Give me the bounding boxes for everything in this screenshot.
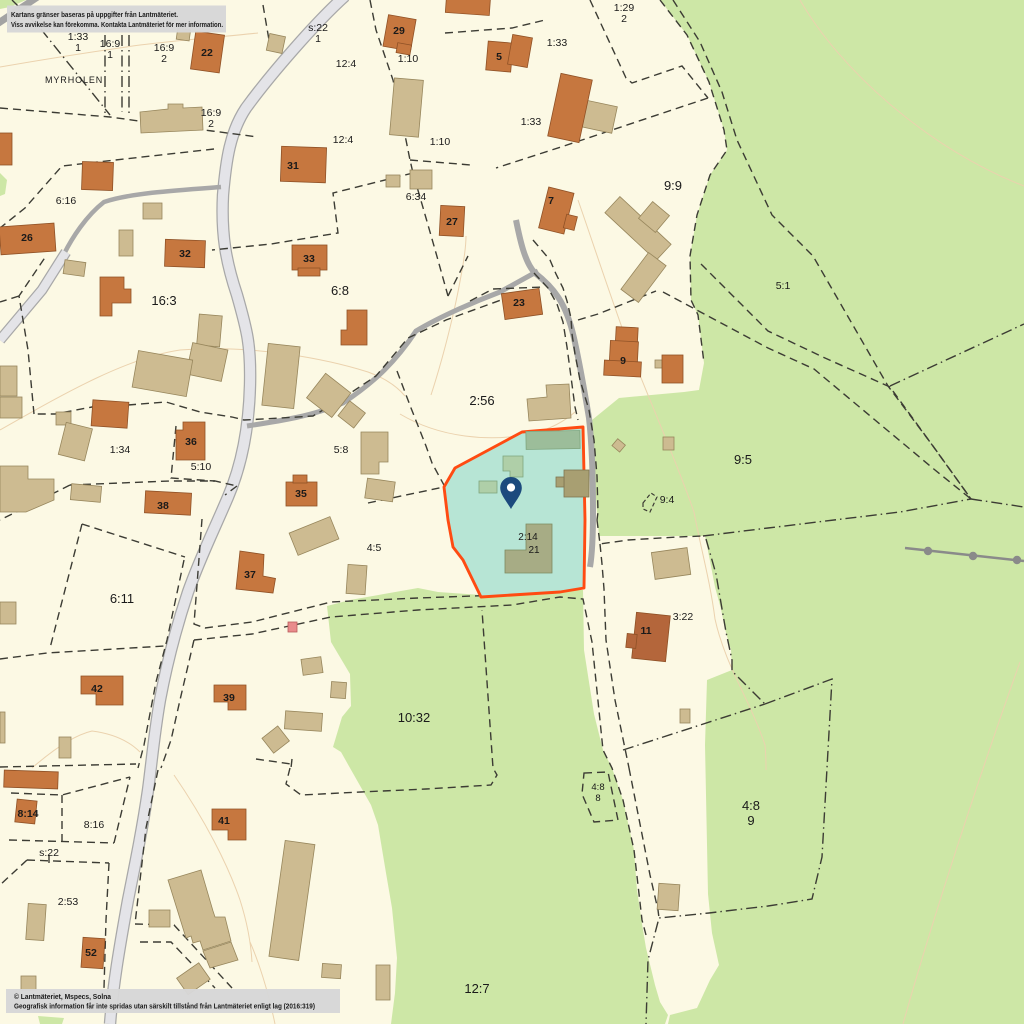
svg-text:12:4: 12:4	[336, 58, 357, 70]
svg-text:2:56: 2:56	[469, 393, 494, 408]
svg-text:5:1: 5:1	[776, 280, 791, 292]
svg-text:9:5: 9:5	[734, 452, 752, 467]
svg-text:36: 36	[185, 436, 197, 448]
svg-text:MYRHOLEN: MYRHOLEN	[45, 75, 103, 85]
svg-text:22: 22	[201, 47, 213, 59]
svg-text:6:34: 6:34	[406, 191, 427, 203]
svg-text:1:34: 1:34	[110, 444, 131, 456]
svg-text:1:33: 1:33	[547, 37, 568, 49]
svg-text:9: 9	[620, 355, 626, 367]
svg-text:2: 2	[161, 53, 167, 65]
svg-text:38: 38	[157, 500, 169, 512]
svg-text:16:3: 16:3	[151, 293, 176, 308]
svg-text:1: 1	[107, 49, 113, 61]
svg-text:Viss avvikelse kan förekomma.: Viss avvikelse kan förekomma. Kontakta L…	[11, 20, 223, 29]
svg-text:Geografisk information får int: Geografisk information får inte spridas …	[14, 1002, 316, 1011]
svg-text:6:16: 6:16	[56, 195, 77, 207]
svg-text:52: 52	[85, 947, 97, 959]
svg-text:12:7: 12:7	[464, 981, 489, 996]
svg-text:10:32: 10:32	[398, 710, 431, 725]
svg-text:1:10: 1:10	[398, 53, 419, 65]
svg-text:39: 39	[223, 692, 235, 704]
svg-text:8:16: 8:16	[84, 819, 105, 831]
svg-text:11: 11	[640, 625, 651, 637]
svg-text:2: 2	[208, 118, 214, 130]
svg-text:8: 8	[595, 793, 600, 804]
svg-text:7: 7	[548, 195, 554, 207]
svg-text:2: 2	[621, 13, 627, 25]
svg-text:2:14: 2:14	[518, 532, 538, 543]
svg-text:4:8: 4:8	[591, 782, 604, 793]
svg-text:8:14: 8:14	[17, 808, 38, 820]
svg-text:5:10: 5:10	[191, 461, 212, 473]
svg-text:27: 27	[446, 216, 458, 228]
svg-text:26: 26	[21, 232, 33, 244]
svg-text:Kartans gränser baseras på upp: Kartans gränser baseras på uppgifter frå…	[11, 10, 178, 19]
svg-text:41: 41	[218, 815, 230, 827]
svg-text:4:8: 4:8	[742, 798, 760, 813]
svg-text:1: 1	[315, 33, 321, 45]
svg-text:33: 33	[303, 253, 315, 265]
svg-text:1:10: 1:10	[430, 136, 451, 148]
svg-text:6:11: 6:11	[110, 591, 134, 606]
svg-text:31: 31	[287, 160, 299, 172]
svg-text:29: 29	[393, 25, 405, 37]
svg-text:5:8: 5:8	[334, 444, 349, 456]
svg-text:21: 21	[528, 545, 540, 556]
svg-text:35: 35	[295, 488, 307, 500]
svg-text:1:33: 1:33	[521, 116, 542, 128]
svg-text:4:5: 4:5	[367, 542, 382, 554]
svg-text:1: 1	[75, 42, 81, 54]
svg-text:9:9: 9:9	[664, 178, 682, 193]
svg-text:5: 5	[496, 51, 502, 63]
svg-text:s:22: s:22	[39, 847, 59, 859]
svg-text:23: 23	[513, 297, 525, 309]
svg-text:6:8: 6:8	[331, 283, 349, 298]
svg-text:42: 42	[91, 683, 103, 695]
svg-text:32: 32	[179, 248, 191, 260]
svg-text:© Lantmäteriet, Mspecs, Solna: © Lantmäteriet, Mspecs, Solna	[14, 992, 112, 1001]
svg-text:9: 9	[747, 813, 754, 828]
svg-text:3:22: 3:22	[673, 611, 694, 623]
svg-text:9:4: 9:4	[660, 494, 675, 506]
svg-text:37: 37	[244, 569, 256, 581]
svg-text:2:53: 2:53	[58, 896, 79, 908]
svg-text:12:4: 12:4	[333, 134, 354, 146]
